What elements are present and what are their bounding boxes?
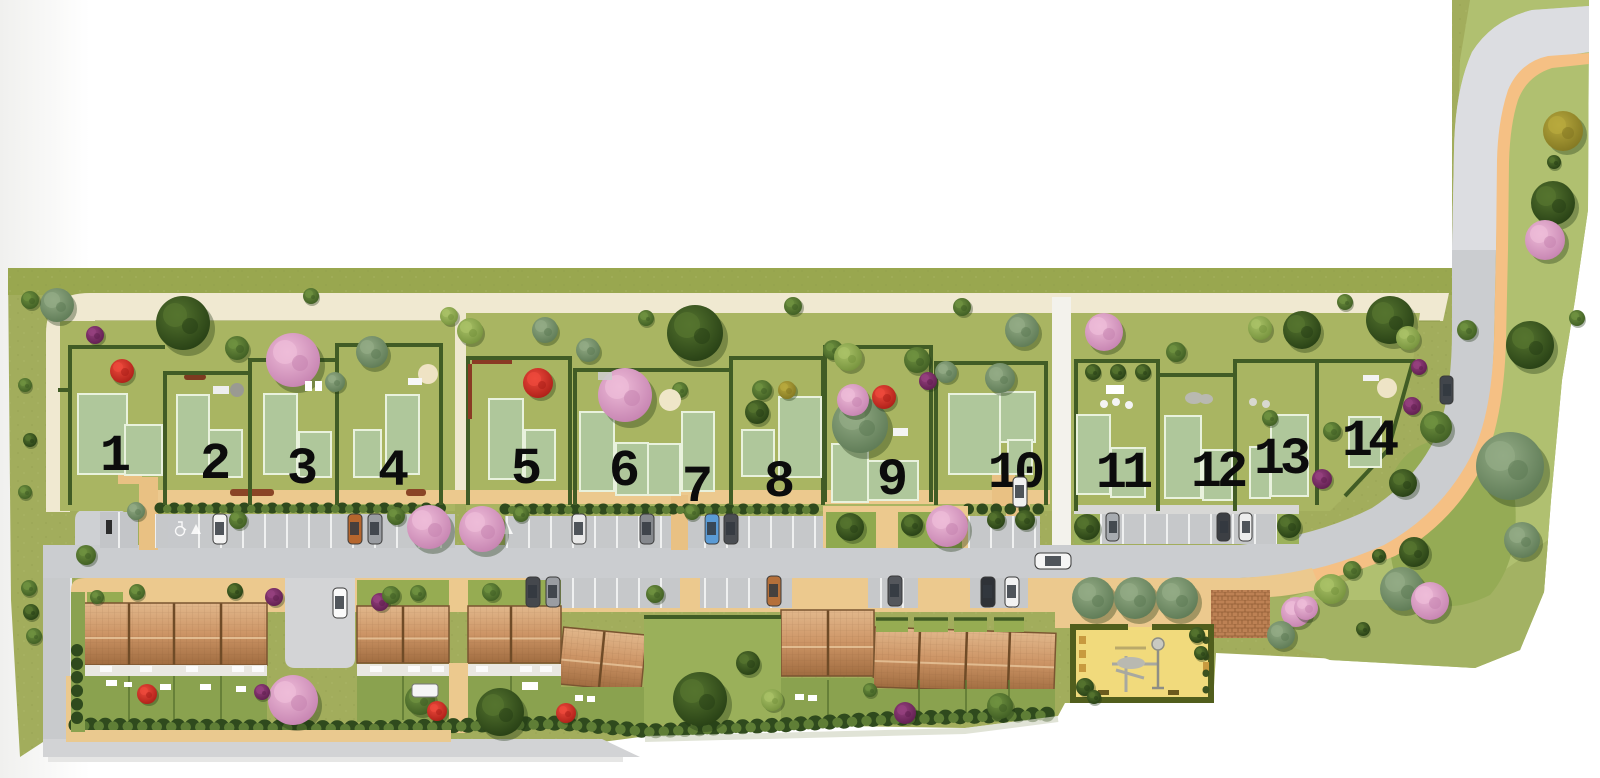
svg-text:14: 14 — [1342, 412, 1398, 471]
svg-text:12: 12 — [1191, 443, 1246, 502]
svg-text:8: 8 — [764, 453, 793, 512]
svg-text:11: 11 — [1096, 444, 1151, 503]
svg-text:5: 5 — [511, 440, 540, 499]
svg-text:4: 4 — [378, 442, 408, 501]
svg-text:13: 13 — [1254, 430, 1309, 489]
svg-text:6: 6 — [609, 442, 638, 501]
svg-text:2: 2 — [200, 435, 229, 494]
svg-text:1: 1 — [100, 427, 129, 486]
svg-text:3: 3 — [287, 440, 316, 499]
svg-text:9: 9 — [877, 451, 906, 510]
